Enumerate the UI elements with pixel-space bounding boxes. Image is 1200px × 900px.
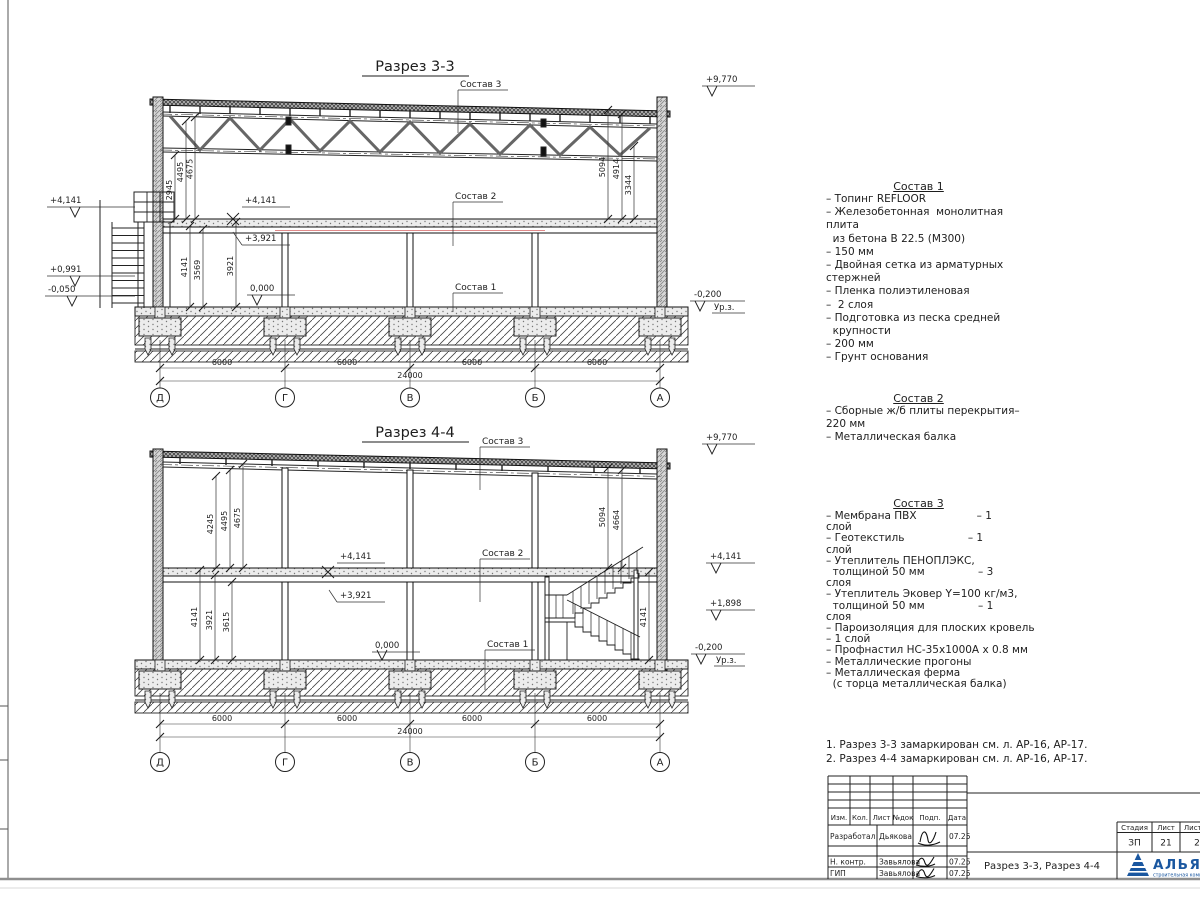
- vertical-dims: [196, 460, 653, 664]
- svg-text:0,000: 0,000: [375, 641, 399, 651]
- composition-1-lines: – Топинг REFLOOR– Железобетонная монолит…: [826, 193, 1096, 365]
- svg-text:4495: 4495: [220, 511, 229, 531]
- composition-2-title: Состав 2: [826, 392, 1011, 405]
- stage-headers: Стадия Лист Листов: [1121, 824, 1200, 832]
- svg-text:В: В: [407, 393, 414, 404]
- svg-text:Н. контр.: Н. контр.: [830, 858, 866, 867]
- svg-text:+3,921: +3,921: [340, 591, 371, 601]
- svg-text:+4,141: +4,141: [340, 552, 371, 562]
- svg-text:Дьякова: Дьякова: [879, 832, 912, 841]
- text-line: – Сборные ж/б плиты перекрытия–: [826, 405, 1096, 418]
- text-line: стержней: [826, 272, 1096, 285]
- signatures: [916, 832, 940, 878]
- text-line: – Металлическая балка: [826, 431, 1096, 444]
- text-line: (с торца металлическая балка): [826, 679, 1096, 690]
- svg-text:Изм.: Изм.: [831, 814, 847, 822]
- svg-text:3921: 3921: [205, 610, 214, 630]
- svg-text:2: 2: [1194, 839, 1200, 849]
- svg-text:А: А: [657, 393, 664, 404]
- svg-text:4141: 4141: [639, 607, 648, 627]
- section-33: Разрез 3-3: [45, 59, 755, 407]
- svg-text:+9,770: +9,770: [706, 433, 737, 443]
- svg-text:07.25: 07.25: [949, 869, 971, 878]
- svg-text:4675: 4675: [186, 159, 195, 179]
- svg-text:5094: 5094: [598, 507, 607, 527]
- composition-1-title: Состав 1: [826, 180, 1011, 193]
- svg-text:+4,141: +4,141: [245, 196, 276, 206]
- svg-text:6000: 6000: [462, 358, 482, 367]
- text-line: из бетона В 22.5 (М300): [826, 233, 1096, 246]
- svg-text:Дата: Дата: [948, 814, 966, 822]
- text-line: – 200 мм: [826, 338, 1096, 351]
- drawing-sheet: Разрез 3-3: [0, 0, 1200, 900]
- svg-text:Состав 3: Состав 3: [482, 437, 523, 447]
- svg-text:6000: 6000: [337, 714, 357, 723]
- svg-text:Д: Д: [156, 758, 164, 769]
- svg-text:+9,770: +9,770: [706, 75, 737, 85]
- svg-text:-0,200: -0,200: [694, 290, 721, 300]
- svg-text:Состав 2: Состав 2: [455, 192, 496, 202]
- text-line: – Геотекстиль – 1: [826, 533, 1096, 544]
- svg-text:-0,050: -0,050: [48, 285, 75, 295]
- text-line: – Мембрана ПВХ – 1: [826, 511, 1096, 522]
- svg-text:Завьялова: Завьялова: [879, 858, 920, 867]
- columns: [282, 233, 538, 307]
- svg-text:5094: 5094: [598, 157, 607, 177]
- text-line: – Железобетонная монолитная: [826, 206, 1096, 219]
- sheet-notes: 1. Разрез 3-3 замаркирован см. л. АР-16,…: [826, 739, 1087, 766]
- svg-text:6000: 6000: [587, 714, 607, 723]
- svg-text:4245: 4245: [206, 514, 215, 534]
- axis-bubbles: Д Г В Б А: [151, 384, 670, 407]
- svg-text:Б: Б: [532, 758, 539, 769]
- svg-text:3569: 3569: [193, 260, 202, 280]
- svg-text:Завьялова: Завьялова: [879, 869, 920, 878]
- svg-text:ГИП: ГИП: [830, 869, 846, 878]
- composition-2-lines: – Сборные ж/б плиты перекрытия–220 мм– М…: [826, 405, 1096, 445]
- svg-text:+4,141: +4,141: [50, 196, 81, 206]
- svg-text:3921: 3921: [226, 256, 235, 276]
- text-line: 2. Разрез 4-4 замаркирован см. л. АР-16,…: [826, 753, 1087, 767]
- svg-text:+0,991: +0,991: [50, 265, 81, 275]
- svg-text:Стадия: Стадия: [1121, 824, 1148, 832]
- svg-text:Г: Г: [282, 758, 288, 769]
- svg-text:В: В: [407, 758, 414, 769]
- svg-text:24000: 24000: [397, 371, 422, 380]
- svg-text:4495: 4495: [176, 162, 185, 182]
- text-line: – Пленка полиэтиленовая: [826, 285, 1096, 298]
- text-line: 1. Разрез 3-3 замаркирован см. л. АР-16,…: [826, 739, 1087, 753]
- svg-text:Лист: Лист: [1157, 824, 1175, 832]
- text-line: – Профнастил НС-35х1000А х 0.8 мм: [826, 645, 1096, 656]
- svg-text:-0,200: -0,200: [695, 643, 722, 653]
- text-line: – Топинг REFLOOR: [826, 193, 1096, 206]
- company-logo-icon: [1125, 853, 1151, 876]
- svg-text:Ур.з.: Ур.з.: [716, 656, 737, 666]
- svg-text:Состав 3: Состав 3: [460, 80, 501, 90]
- svg-text:Состав 1: Состав 1: [487, 640, 528, 650]
- svg-text:ЗП: ЗП: [1128, 839, 1141, 849]
- internal-stair: [545, 547, 643, 662]
- svg-text:3615: 3615: [222, 612, 231, 632]
- svg-text:Б: Б: [532, 393, 539, 404]
- text-line: – Грунт основания: [826, 351, 1096, 364]
- svg-text:А: А: [657, 758, 664, 769]
- svg-text:4675: 4675: [233, 508, 242, 528]
- svg-text:4914: 4914: [612, 159, 621, 179]
- svg-text:+4,141: +4,141: [710, 552, 741, 562]
- text-line: толщиной 50 мм – 1: [826, 601, 1096, 612]
- svg-text:6000: 6000: [462, 714, 482, 723]
- svg-text:24000: 24000: [397, 727, 422, 736]
- stage-values: ЗП 21 2: [1128, 839, 1200, 849]
- axis-bubbles: Д Г В Б А: [151, 740, 670, 772]
- svg-text:Д: Д: [156, 393, 164, 404]
- svg-text:Ур.з.: Ур.з.: [714, 303, 735, 313]
- svg-text:07.25: 07.25: [949, 858, 971, 867]
- svg-text:Листов: Листов: [1184, 824, 1200, 832]
- svg-text:Состав 2: Состав 2: [482, 549, 523, 559]
- titleblock-rows: Разработал Дьякова 07.25 Н. контр. Завья…: [830, 832, 971, 878]
- svg-text:+3,921: +3,921: [245, 234, 276, 244]
- svg-text:6000: 6000: [212, 358, 232, 367]
- svg-text:6000: 6000: [212, 714, 232, 723]
- company-logo-subtext: строительная компания: [1153, 874, 1200, 879]
- section-title: Разрез 3-3: [375, 59, 454, 75]
- section-title: Разрез 4-4: [375, 425, 454, 441]
- svg-text:№док: №док: [893, 814, 914, 822]
- text-line: – Подготовка из песка средней: [826, 312, 1096, 325]
- svg-text:Лист: Лист: [873, 814, 891, 822]
- svg-text:6000: 6000: [337, 358, 357, 367]
- svg-text:0,000: 0,000: [250, 284, 274, 294]
- svg-text:+1,898: +1,898: [710, 599, 741, 609]
- text-line: – Утеплитель Эковер Y=100 кг/м3,: [826, 589, 1096, 600]
- svg-text:3344: 3344: [624, 175, 633, 195]
- text-line: – 2 слоя: [826, 299, 1096, 312]
- composition-3-lines: – Мембрана ПВХ – 1слой– Геотекстиль – 1с…: [826, 511, 1096, 690]
- titleblock-headers: Изм. Кол. Лист №док Подп. Дата: [831, 814, 966, 822]
- composition-3-title: Состав 3: [826, 497, 1011, 510]
- text-line: – Двойная сетка из арматурных: [826, 259, 1096, 272]
- title-block: Изм. Кол. Лист №док Подп. Дата Разработа…: [828, 776, 1200, 879]
- svg-text:Подп.: Подп.: [919, 814, 940, 822]
- svg-text:Разработал: Разработал: [830, 832, 876, 841]
- company-logo-text: АЛЬЯНС: [1153, 857, 1200, 873]
- svg-text:4141: 4141: [190, 607, 199, 627]
- svg-text:Г: Г: [282, 393, 288, 404]
- doc-title: Разрез 3-3, Разрез 4-4: [984, 861, 1100, 872]
- svg-text:6000: 6000: [587, 358, 607, 367]
- svg-text:4141: 4141: [180, 257, 189, 277]
- svg-text:4664: 4664: [612, 510, 621, 530]
- svg-text:Состав 1: Состав 1: [455, 283, 496, 293]
- section-44: Разрез 4-4: [135, 425, 755, 772]
- text-line: крупности: [826, 325, 1096, 338]
- svg-text:Кол.: Кол.: [852, 814, 868, 822]
- text-line: – 150 мм: [826, 246, 1096, 259]
- svg-text:07.25: 07.25: [949, 832, 971, 841]
- svg-text:2945: 2945: [165, 180, 174, 200]
- vertical-dims: [171, 106, 638, 311]
- text-line: 220 мм: [826, 418, 1096, 431]
- text-line: плита: [826, 219, 1096, 232]
- text-line: толщиной 50 мм – 3: [826, 567, 1096, 578]
- svg-text:21: 21: [1160, 839, 1171, 849]
